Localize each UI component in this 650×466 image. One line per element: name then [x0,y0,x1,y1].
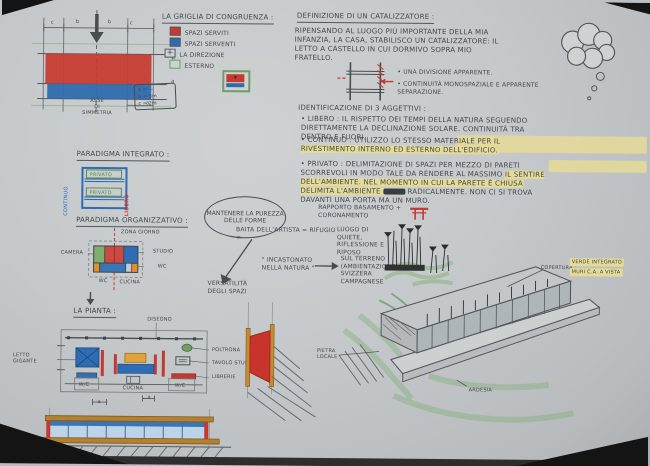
red-arrow-icon [380,78,393,84]
ardesia-label: ARDESIA [469,387,492,393]
desk [176,357,190,365]
wc-zone-left [94,263,100,272]
bunk-bed-sketch [337,56,393,104]
copertura-highlight-2: MURI C.A. A VISTA [570,268,623,276]
letto-gigante-label: LETTO GIGANTE [13,352,37,364]
bubble-text: MANTENERE LA PUREZZA DELLE FORME [205,209,285,225]
grid-dim-b1: b [76,19,79,25]
bed-label-privato-top: PRIVATO [89,172,112,178]
adjective-text: UTILIZZO LO STESSO MATERIALE [354,136,477,145]
grid-dim-c1: c [51,20,54,26]
table [125,353,146,362]
down-left-arrow-icon [212,237,256,285]
end-wall-left [46,421,50,438]
label-camera: CAMERA [61,250,83,256]
note-line-c: c = 2m [138,99,172,107]
legend-label: ESTERNO [184,63,214,70]
legend-item-esterno: ESTERNO [169,60,214,70]
dimension-note-box: a = — b = 3m c = 2m [134,83,177,111]
right-arrow-icon [315,261,339,271]
sliding-wall [101,350,104,376]
small-down-arrow-icon [83,292,97,306]
paradigma-integrato-title: PARADIGMA INTEGRATO : [77,150,170,162]
red-swatch-icon [170,27,181,36]
legend-item-direzione: +LA DIREZIONE [165,49,225,60]
versatilita-note: VERSATILITÀ DEGLI SPAZI [207,280,255,295]
grid-dim-b2: b [108,19,111,25]
torii-icon [410,207,428,221]
adjective-name: • LIBERO : [301,115,340,123]
down-arrow-icon [90,14,104,43]
photo-of-sketch-sheet: c b b c b a a ASSE DI SIMMETRIA LA GRIGL… [0,0,650,466]
legend-item-spazi-serventi: SPAZI SERVENTI [170,38,236,49]
organizational-paradigm-plan [88,238,144,280]
scribbled-word [383,189,405,195]
adjective-privato: • PRIVATO : DELIMITAZIONE DI SPAZI PER M… [300,160,552,208]
bookshelf [172,374,196,379]
legend-item-spazi-serviti: SPAZI SERVITI [170,27,229,38]
catalyst-body: RIPENSANDO AL LUOGO PIÙ IMPORTANTE DELLA… [294,27,509,65]
thought-cloud-icon [544,18,627,113]
highlight-mark [549,160,647,173]
pianta-title: LA PIANTA : [73,307,116,318]
sketch-sheet: c b b c b a a ASSE DI SIMMETRIA LA GRIGL… [0,0,650,466]
sliding-wall [162,351,165,377]
red-section-mass [250,330,270,382]
mini-scheme-thumbnail: ▾ [222,70,250,92]
timber-post [246,328,251,386]
catalyst-bullet-2: • CONTINUITÀ MONOSPAZIALE E APPARENTE SE… [397,81,552,97]
thumbnail-blue-zone [226,83,244,87]
bed-label-privato-bottom: PRIVATO [89,190,112,196]
hillside-section-drawing [241,302,357,423]
wc-zone-right [132,263,138,272]
direction-icon: + [165,49,176,58]
legend-label: LA DIREZIONE [180,52,225,59]
base-slab [39,438,219,445]
label-wc-right: WC [158,264,167,270]
floor-plan-drawing [56,322,212,411]
adjective-name: • CONTINUO : [301,136,352,144]
studio-zone [124,246,138,263]
adjective-continuo: • CONTINUO : UTILIZZO LO STESSO MATERIAL… [301,136,553,156]
served-space-band [45,54,151,85]
cucina-label: CUCINA [123,385,144,391]
wc-right-label: W/C [175,383,186,389]
grid-dim-c2: c [130,20,133,26]
green-outline-swatch-icon [169,60,180,69]
wc-left-label: W/C [79,382,90,388]
librerie-label: LIBRERIE [212,374,236,380]
cucina-zone [100,263,126,272]
end-wall-right [204,422,208,439]
blue-swatch-icon [170,38,181,47]
roof-slab [45,416,213,422]
label-zona-giorno: ZONA GIORNO [121,229,160,235]
paradigma-organizzativo-title: PARADIGMA ORGANIZZATIVO : [76,216,188,228]
luogo-note: LUOGO DI QUIETE, RIFLESSIONE E RIPOSO [337,226,389,256]
camera-zone [94,246,105,263]
plan-dim-a2: a [148,394,151,400]
poltrona-label: POLTRONA [212,347,240,353]
plan-dim-a1: a [97,399,100,405]
thumbnail-red-zone: ▾ [226,74,244,82]
armchair [182,344,192,351]
sofa [118,364,154,373]
adjectives-title: IDENTIFICAZIONE DI 3 AGGETTIVI : [298,104,426,114]
label-wc-bottom: WC [99,278,108,284]
catalyst-title: DEFINIZIONE DI UN CATALIZZATORE : [297,12,435,24]
axis-of-symmetry-label: ASSE DI SIMMETRIA [81,98,113,116]
label-cucina: CUCINA [120,279,141,285]
copertura-highlight-1: VERDE INTEGRATO [570,258,624,266]
bed-label-libero: LIBERO [124,194,130,216]
photo-corner-top-right [604,2,650,14]
legend-title: LA GRIGLIA DI CONGRUENZA : [162,13,274,25]
catalyst-bullet-1: • UNA DIVISIONE APPARENTE. [397,69,547,78]
rapporto-note: RAPPORTO BASAMENTO + CORONAMENTO [318,204,406,220]
bed-label-continuo: CONTINUO [63,186,69,215]
adjective-name: • PRIVATO : [301,160,344,168]
label-studio: STUDIO [153,248,173,254]
building-perspective-sketch [338,255,650,443]
legend-label: SPAZI SERVENTI [185,41,236,48]
legend-label: SPAZI SERVITI [185,30,229,37]
